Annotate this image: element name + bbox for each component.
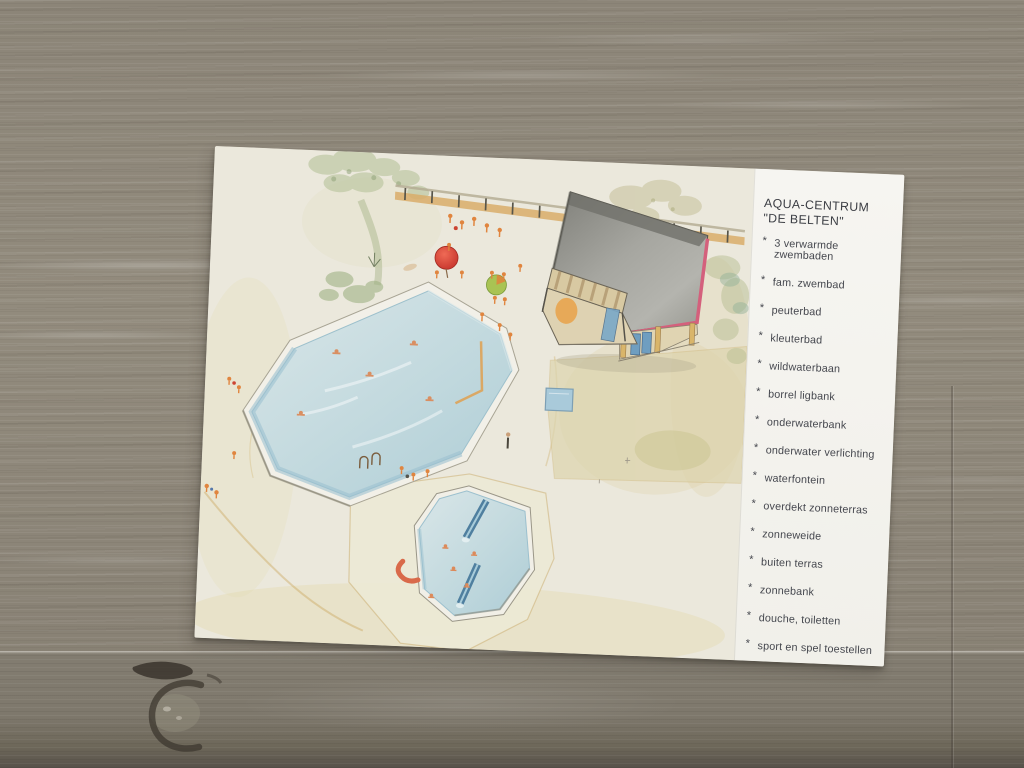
bullet-asterisk: *	[749, 555, 761, 566]
illustration	[194, 146, 754, 660]
fountain-pond	[545, 388, 573, 411]
bullet-asterisk: *	[745, 639, 757, 650]
bullet-asterisk: *	[754, 443, 766, 454]
feature-item: *waterfontein	[752, 473, 885, 490]
bullet-asterisk: *	[751, 499, 763, 510]
feature-item: *borrel ligbank	[756, 389, 889, 406]
feature-text: fam. zwembad	[773, 277, 845, 291]
feature-item: *3 verwarmde zwembaden	[762, 238, 896, 266]
panel-title: AQUA-CENTRUM "DE BELTEN"	[763, 196, 897, 231]
bullet-asterisk: *	[752, 471, 764, 482]
postcard: AQUA-CENTRUM "DE BELTEN" *3 verwarmde zw…	[194, 146, 904, 666]
feature-item: *fam. zwembad	[761, 277, 894, 294]
photo: AQUA-CENTRUM "DE BELTEN" *3 verwarmde zw…	[0, 0, 1024, 768]
feature-text: kleuterbad	[770, 333, 822, 346]
feature-text: onderwater verlichting	[765, 445, 874, 461]
info-panel: AQUA-CENTRUM "DE BELTEN" *3 verwarmde zw…	[734, 169, 904, 667]
bullet-asterisk: *	[762, 236, 775, 258]
bullet-asterisk: *	[761, 275, 773, 286]
feature-text: wildwaterbaan	[769, 361, 840, 375]
feature-text: zonnebank	[760, 585, 815, 598]
feature-item: *buiten terras	[749, 557, 882, 574]
feature-item: *kleuterbad	[758, 333, 891, 350]
feature-text: onderwaterbank	[767, 417, 847, 431]
feature-item: *onderwaterbank	[755, 417, 888, 434]
bullet-asterisk: *	[757, 359, 769, 370]
feature-text: 3 verwarmde zwembaden	[774, 239, 896, 266]
feature-text: douche, toiletten	[758, 613, 840, 627]
feature-text: borrel ligbank	[768, 389, 835, 403]
feature-item: *douche, toiletten	[746, 613, 879, 630]
feature-text: zonneweide	[762, 529, 822, 542]
feature-item: *onderwater verlichting	[753, 445, 886, 462]
feature-text: waterfontein	[764, 473, 825, 487]
bullet-asterisk: *	[759, 303, 771, 314]
bullet-asterisk: *	[758, 331, 770, 342]
feature-item: *zonnebank	[748, 585, 881, 602]
bullet-asterisk: *	[755, 415, 767, 426]
bullet-asterisk: *	[747, 611, 759, 622]
feature-text: peuterbad	[771, 305, 821, 318]
feature-item: *sport en spel toestellen	[745, 641, 878, 658]
feature-text: sport en spel toestellen	[757, 641, 872, 657]
plank-seam-highlight	[953, 386, 954, 768]
feature-text: buiten terras	[761, 557, 823, 571]
bullet-asterisk: *	[756, 387, 768, 398]
feature-item: *peuterbad	[759, 305, 892, 322]
feature-item: *overdekt zonneterras	[751, 501, 884, 518]
feature-item: *zonneweide	[750, 529, 883, 546]
wood-knot	[105, 655, 255, 760]
bullet-asterisk: *	[748, 583, 760, 594]
bullet-asterisk: *	[750, 527, 762, 538]
feature-item: *wildwaterbaan	[757, 361, 890, 378]
feature-text: overdekt zonneterras	[763, 501, 868, 516]
